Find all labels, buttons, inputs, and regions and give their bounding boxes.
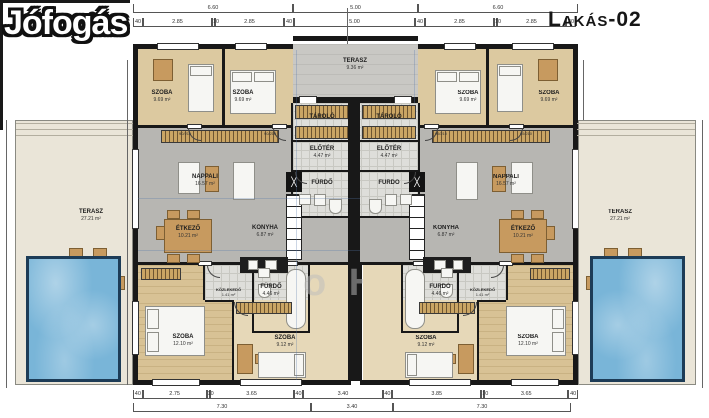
chair — [187, 210, 200, 219]
dimension-row-top-minor: 402.85102.85405.00402.85102.8540 — [133, 18, 578, 27]
terrace-sliding-door — [133, 150, 138, 228]
vertical-dim-line — [127, 60, 128, 385]
sink — [400, 194, 412, 205]
dimension-segment: 3.40 — [311, 403, 393, 412]
dimension-segment: 2.85 — [215, 18, 284, 27]
dimension-row-top-major: 6.605.006.60 — [133, 4, 578, 13]
wall — [133, 44, 293, 49]
room-label-bedroom1: SZOBA9.69 m² — [137, 90, 187, 103]
apartment-left: ╳ 90/210 90/210 — [133, 44, 351, 385]
wall — [138, 125, 293, 128]
room-label-bathroom: FÜRDŐ4.46 m² — [420, 284, 460, 297]
dimension-segment: 40 — [568, 390, 578, 399]
pillow — [147, 309, 159, 329]
room-label-storage: TÁROLÓ — [293, 114, 351, 121]
dimension-row-bottom-minor: 402.75103.65403.40403.85103.6540 — [133, 390, 578, 399]
dimension-segment: 40 — [294, 390, 304, 399]
pillow — [437, 72, 457, 82]
window — [445, 44, 475, 49]
desk — [458, 344, 474, 374]
door-size-annotation: 90/210 — [520, 132, 532, 136]
vertical-dim-line — [347, 8, 348, 44]
chair — [531, 210, 544, 219]
room-label-foyer: ELŐTÉR4.47 m² — [360, 146, 418, 159]
room-label-hallway: KÖZLEKEDŐ1.41 m² — [459, 288, 506, 298]
pillow — [232, 72, 252, 82]
border-artifact-top — [0, 0, 130, 3]
room-label-dining: ÉTKEZŐ10.21 m² — [498, 226, 548, 239]
terrace-left: TERASZ 27.21 m² — [15, 120, 133, 385]
wall — [252, 265, 254, 333]
vertical-dim-line — [6, 120, 7, 388]
storage-closet — [362, 126, 416, 139]
border-artifact-left — [0, 0, 3, 130]
chair — [511, 210, 524, 219]
terrace-right: TERASZ 27.21 m² — [578, 120, 696, 385]
room-label-foyer: ELŐTÉR4.47 m² — [293, 146, 351, 159]
porch-step — [293, 36, 418, 41]
floor-livingroom — [138, 128, 293, 262]
dimension-segment: 3.65 — [484, 390, 568, 399]
sink — [258, 268, 270, 278]
dimension-segment: 2.85 — [425, 18, 494, 27]
window — [133, 302, 138, 354]
door-size-annotation: 90/210 — [264, 132, 276, 136]
wall — [232, 300, 234, 380]
dimension-row-bottom-major: 7.303.407.30 — [133, 403, 578, 412]
desk — [538, 59, 558, 81]
window — [410, 380, 470, 385]
dimension-segment: 40 — [383, 390, 393, 399]
interior-dim-line — [296, 50, 297, 380]
apartment-right: ╳ 90/210 90/210 — [360, 44, 578, 385]
dimension-segment: 40 — [415, 18, 425, 27]
wall — [418, 44, 578, 49]
window — [513, 44, 553, 49]
wardrobe — [432, 130, 550, 143]
terrace-steps — [16, 121, 134, 141]
room-label-bedroom1: SZOBA9.69 m² — [524, 90, 574, 103]
pillow — [254, 72, 274, 82]
chair — [511, 254, 524, 263]
toilet — [369, 199, 382, 214]
swimming-pool — [590, 256, 685, 382]
toilet — [329, 199, 342, 214]
chair — [187, 254, 200, 263]
vertical-dim-line — [702, 120, 703, 388]
window — [158, 44, 198, 49]
wall — [457, 265, 459, 333]
floor-bedroom4 — [363, 262, 401, 380]
dimension-segment: 5.00 — [294, 18, 415, 27]
pillow — [407, 354, 417, 376]
door-size-annotation: 90/210 — [179, 132, 191, 136]
sink — [441, 268, 453, 278]
room-label-livingroom: NAPPALI16.57 m² — [476, 174, 536, 187]
room-label-hallway: KÖZLEKEDŐ1.41 m² — [205, 288, 252, 298]
pillow — [459, 72, 479, 82]
sink — [299, 194, 311, 205]
sink — [453, 260, 463, 270]
dimension-segment: 6.60 — [133, 4, 293, 13]
floor-livingroom — [418, 128, 573, 262]
room-label-terrace: TERASZ 27.21 m² — [590, 209, 650, 222]
room-label-bedroom3: SZOBA12.10 m² — [155, 334, 211, 347]
room-label-bathroom: FÜRDŐ4.46 m² — [251, 284, 291, 297]
sofa — [233, 162, 255, 200]
wall — [360, 140, 418, 142]
dimension-segment: 3.40 — [303, 390, 382, 399]
wardrobe — [530, 268, 570, 280]
wall — [293, 140, 351, 142]
wardrobe — [141, 268, 181, 280]
wall — [205, 300, 234, 302]
room-label-bedroom4: SZOBA9.12 m² — [398, 335, 454, 348]
room-label-bath-small: FÜRDŐ — [293, 180, 351, 187]
wall — [254, 331, 310, 333]
chair — [167, 254, 180, 263]
washing-machine — [314, 194, 326, 206]
wall — [401, 331, 457, 333]
window — [153, 380, 199, 385]
room-label-dining: ÉTKEZŐ10.21 m² — [163, 226, 213, 239]
wall — [477, 300, 479, 380]
wall — [486, 49, 489, 128]
window — [512, 380, 558, 385]
desk — [153, 59, 173, 81]
window — [241, 380, 301, 385]
door-size-annotation: 90/210 — [435, 132, 447, 136]
chair — [531, 254, 544, 263]
room-label-bedroom3: SZOBA12.10 m² — [500, 334, 556, 347]
dimension-segment: 2.85 — [143, 18, 212, 27]
washing-machine — [385, 194, 397, 206]
wall — [222, 49, 225, 128]
dimension-segment: 40 — [133, 390, 143, 399]
sofa — [456, 162, 478, 200]
room-label-bedroom4: SZOBA9.12 m² — [257, 335, 313, 348]
room-label-kitchen: KONYHA6.87 m² — [424, 225, 468, 238]
dimension-segment: 7.30 — [133, 403, 311, 412]
room-label-bath-small: FÜRDŐ — [360, 180, 418, 187]
jofogas-watermark-logo: Jófogás — [4, 4, 127, 43]
storage-closet — [295, 126, 349, 139]
room-label-livingroom: NAPPALI16.57 m² — [175, 174, 235, 187]
dimension-segment: 2.75 — [143, 390, 207, 399]
dimension-segment: 3.85 — [392, 390, 481, 399]
room-label-storage: TÁROLÓ — [360, 114, 418, 121]
desk — [237, 344, 253, 374]
room-label-kitchen: KONYHA6.87 m² — [243, 225, 287, 238]
room-label-terrace: TERASZ 27.21 m² — [61, 209, 121, 222]
dimension-segment: 3.65 — [210, 390, 294, 399]
sink — [248, 260, 258, 270]
terrace-steps — [577, 121, 695, 141]
unit-title-right: Lakás-02 — [548, 8, 642, 32]
floorplan-image: TERASZ 27.21 m² #terrace-left .pool, #te… — [0, 0, 709, 418]
bathtub — [405, 269, 425, 329]
wall — [477, 300, 506, 302]
wall — [401, 265, 403, 333]
pillow — [190, 66, 212, 76]
pillow — [499, 66, 521, 76]
pillow — [552, 309, 564, 329]
chair — [167, 210, 180, 219]
dimension-segment: 40 — [284, 18, 294, 27]
dimension-segment: 5.00 — [293, 4, 418, 13]
room-label-bedroom2: SZOBA9.69 m² — [218, 90, 268, 103]
swimming-pool — [26, 256, 121, 382]
dimension-segment: 7.30 — [393, 403, 571, 412]
dimension-segment: 40 — [133, 18, 143, 27]
wall — [506, 265, 508, 300]
window — [236, 44, 266, 49]
wall — [418, 125, 573, 128]
room-label-bedroom2: SZOBA9.69 m² — [443, 90, 493, 103]
